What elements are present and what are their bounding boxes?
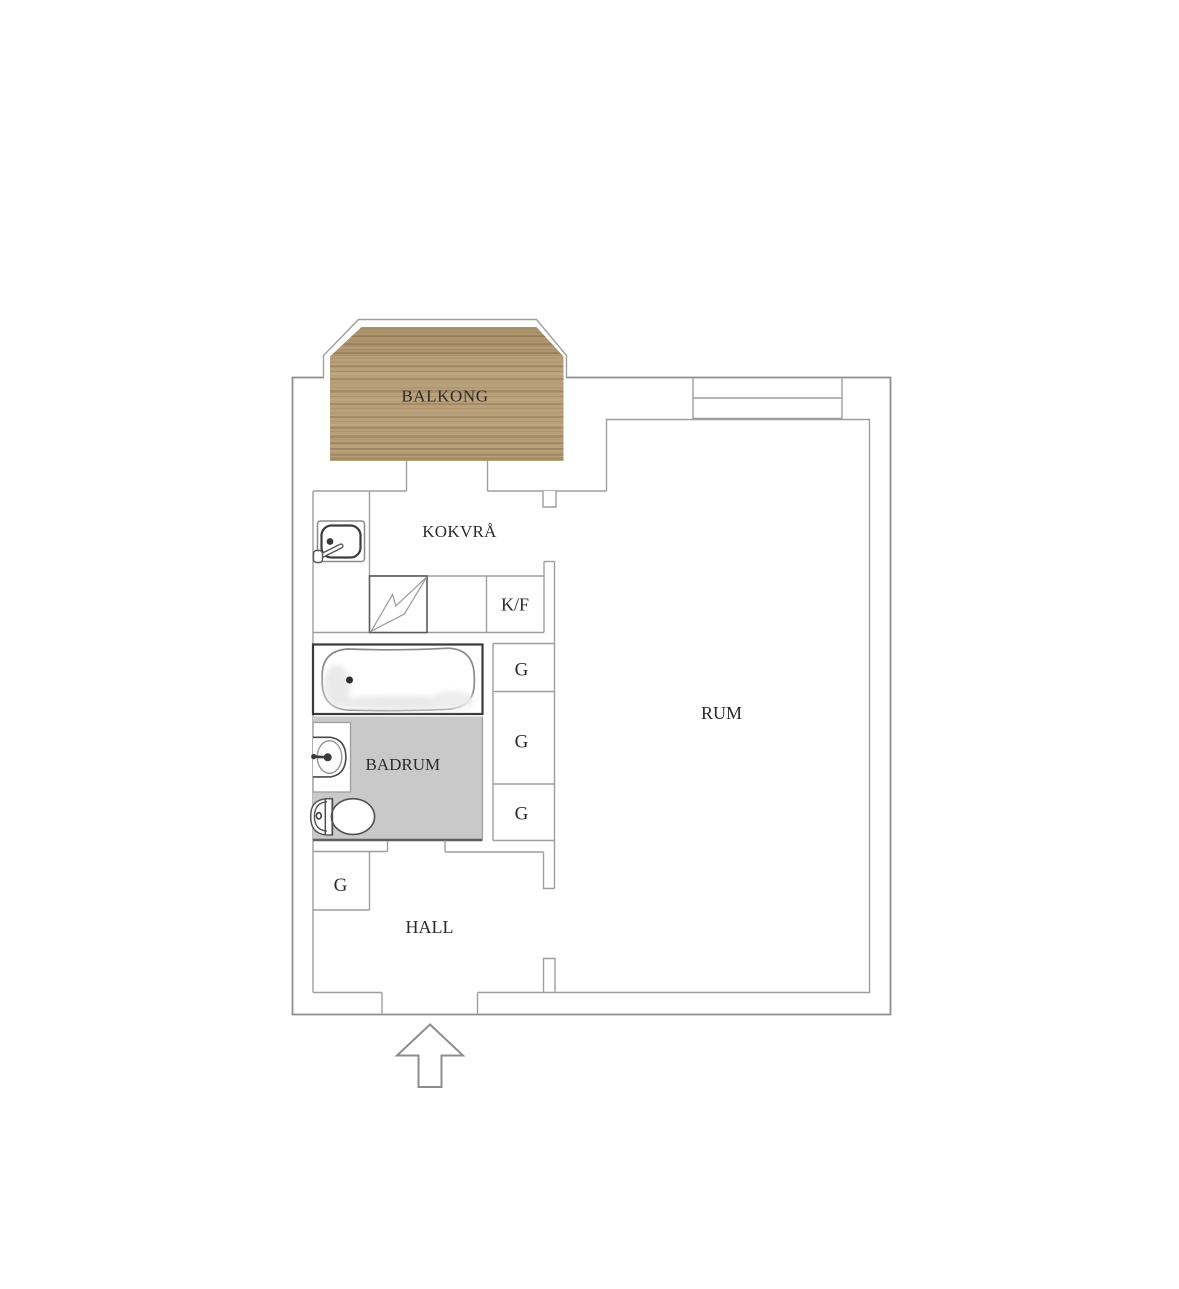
svg-text:KOKVRÅ: KOKVRÅ	[422, 522, 497, 541]
svg-text:RUM: RUM	[701, 703, 742, 723]
svg-text:G: G	[515, 660, 529, 681]
svg-text:K/F: K/F	[501, 595, 529, 615]
svg-text:G: G	[515, 732, 529, 753]
svg-text:HALL: HALL	[406, 917, 454, 937]
svg-text:BADRUM: BADRUM	[365, 755, 440, 774]
svg-text:G: G	[334, 875, 348, 896]
svg-text:G: G	[515, 804, 529, 825]
svg-text:BALKONG: BALKONG	[401, 387, 488, 406]
